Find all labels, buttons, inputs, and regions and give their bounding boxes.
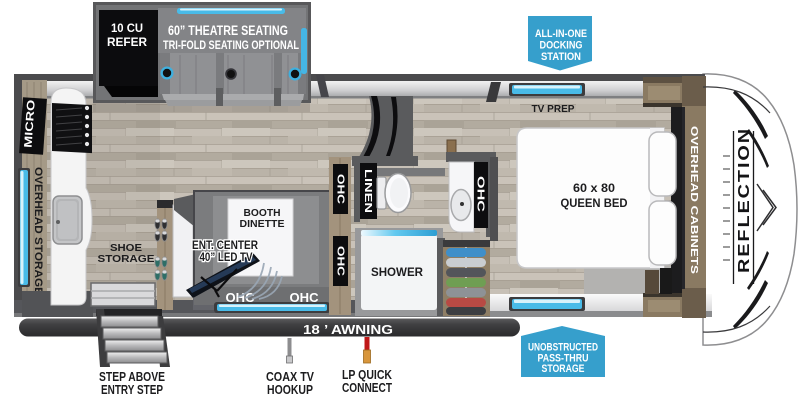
- svg-text:60 x 80: 60 x 80: [573, 181, 615, 195]
- svg-text:DINETTE: DINETTE: [240, 218, 285, 230]
- svg-text:OVERHEAD CABINETS: OVERHEAD CABINETS: [688, 126, 700, 274]
- svg-text:LINEN: LINEN: [362, 169, 373, 213]
- svg-text:10 CU: 10 CU: [111, 21, 143, 35]
- svg-text:STATION: STATION: [541, 51, 581, 63]
- svg-text:ALL-IN-ONE: ALL-IN-ONE: [535, 28, 587, 40]
- svg-text:40” LED TV: 40” LED TV: [200, 252, 253, 264]
- svg-text:ENT. CENTER: ENT. CENTER: [192, 240, 259, 252]
- svg-text:CONNECT: CONNECT: [342, 381, 392, 395]
- svg-text:REFER: REFER: [107, 35, 147, 49]
- svg-text:REFLECTION: REFLECTION: [736, 127, 753, 273]
- svg-text:STORAGE: STORAGE: [542, 363, 585, 375]
- svg-text:TV PREP: TV PREP: [532, 103, 575, 115]
- svg-text:SHOWER: SHOWER: [371, 265, 423, 279]
- svg-text:STEP ABOVE: STEP ABOVE: [99, 370, 165, 384]
- svg-text:ENTRY STEP: ENTRY STEP: [101, 383, 163, 397]
- svg-text:18 ’ AWNING: 18 ’ AWNING: [303, 322, 393, 337]
- svg-text:STORAGE: STORAGE: [98, 253, 155, 265]
- svg-text:OHC: OHC: [335, 246, 346, 276]
- svg-text:LP QUICK: LP QUICK: [342, 368, 392, 382]
- svg-text:QUEEN BED: QUEEN BED: [561, 196, 628, 210]
- svg-text:OVERHEAD STORAGE: OVERHEAD STORAGE: [32, 167, 44, 295]
- svg-text:TRI-FOLD SEATING OPTIONAL: TRI-FOLD SEATING OPTIONAL: [163, 40, 299, 52]
- svg-text:OHC: OHC: [335, 174, 346, 204]
- svg-text:HOOKUP: HOOKUP: [267, 383, 313, 397]
- svg-text:OHC: OHC: [475, 176, 486, 212]
- svg-text:COAX TV: COAX TV: [266, 370, 315, 384]
- svg-text:60” THEATRE SEATING: 60” THEATRE SEATING: [168, 23, 288, 38]
